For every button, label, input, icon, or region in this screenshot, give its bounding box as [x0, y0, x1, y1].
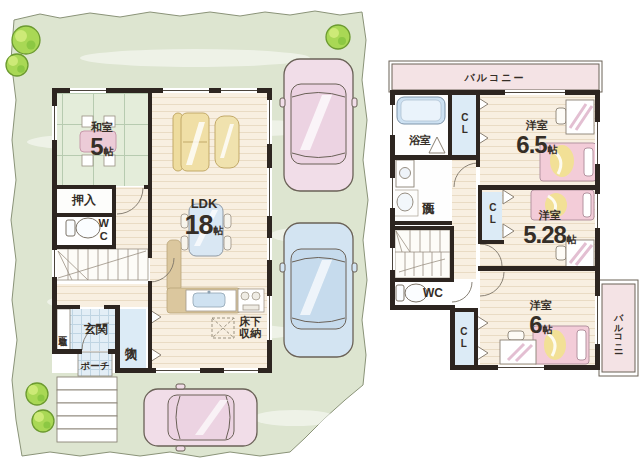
underfloor-storage-label: 床下 収納 [239, 316, 261, 339]
sofa [173, 113, 209, 171]
ottoman-rug [215, 116, 239, 168]
balcony-right-label: バルコニー [613, 308, 622, 349]
ldk-label: LDK 18帖 [184, 197, 223, 239]
monoire-storage [117, 309, 146, 369]
monoire-label: 物入 [125, 337, 138, 339]
getabako-shoe-cabinet [57, 309, 70, 351]
tree-icon [326, 25, 350, 49]
bedroom-65-label: 洋室 6.5帖 [516, 120, 557, 157]
bathtub-icon [397, 97, 445, 124]
closet-3-label: CL [458, 326, 469, 350]
oshiire-label: 押入 [72, 194, 96, 207]
genkan-label: 玄関 [84, 323, 108, 336]
porch-label: ポーチ [81, 361, 110, 371]
corridor [116, 187, 148, 249]
washing-machine-icon [396, 160, 414, 187]
hall [56, 284, 148, 307]
balcony-top-label: バルコニー [465, 73, 526, 84]
tree-icon [6, 54, 28, 76]
senmen-label: 洗面 [422, 192, 435, 194]
closet-2-label: CL [487, 202, 498, 226]
closet-1-label: CL [459, 112, 470, 136]
wc-label-2f: WC [423, 287, 443, 300]
hall-2f [452, 159, 476, 279]
bedroom-528-label: 洋室 5.28帖 [523, 210, 577, 247]
tree-icon [26, 383, 48, 405]
car-middle-blue [280, 223, 357, 357]
car-bottom-pink [144, 384, 257, 451]
exterior-steps [57, 377, 117, 442]
washitsu-label: 和室 5帖 [90, 122, 113, 159]
tree-icon [32, 410, 54, 432]
toilet-icon [66, 218, 100, 238]
bedroom-6-label: 洋室 6帖 [529, 300, 552, 337]
car-top-right-pink [280, 59, 357, 191]
washbasin-icon [394, 190, 418, 216]
stove [238, 289, 264, 312]
bath-label: 浴室 [409, 135, 431, 147]
tree-icon [12, 26, 40, 54]
sink [193, 293, 225, 307]
wc-label-1f: WC [97, 217, 109, 243]
floor-plan-page: 和室 5帖 押入 WC 玄関 下駄箱 物入 ポーチ LDK 18帖 床下 収納 … [0, 0, 640, 476]
second-floor [389, 61, 638, 376]
